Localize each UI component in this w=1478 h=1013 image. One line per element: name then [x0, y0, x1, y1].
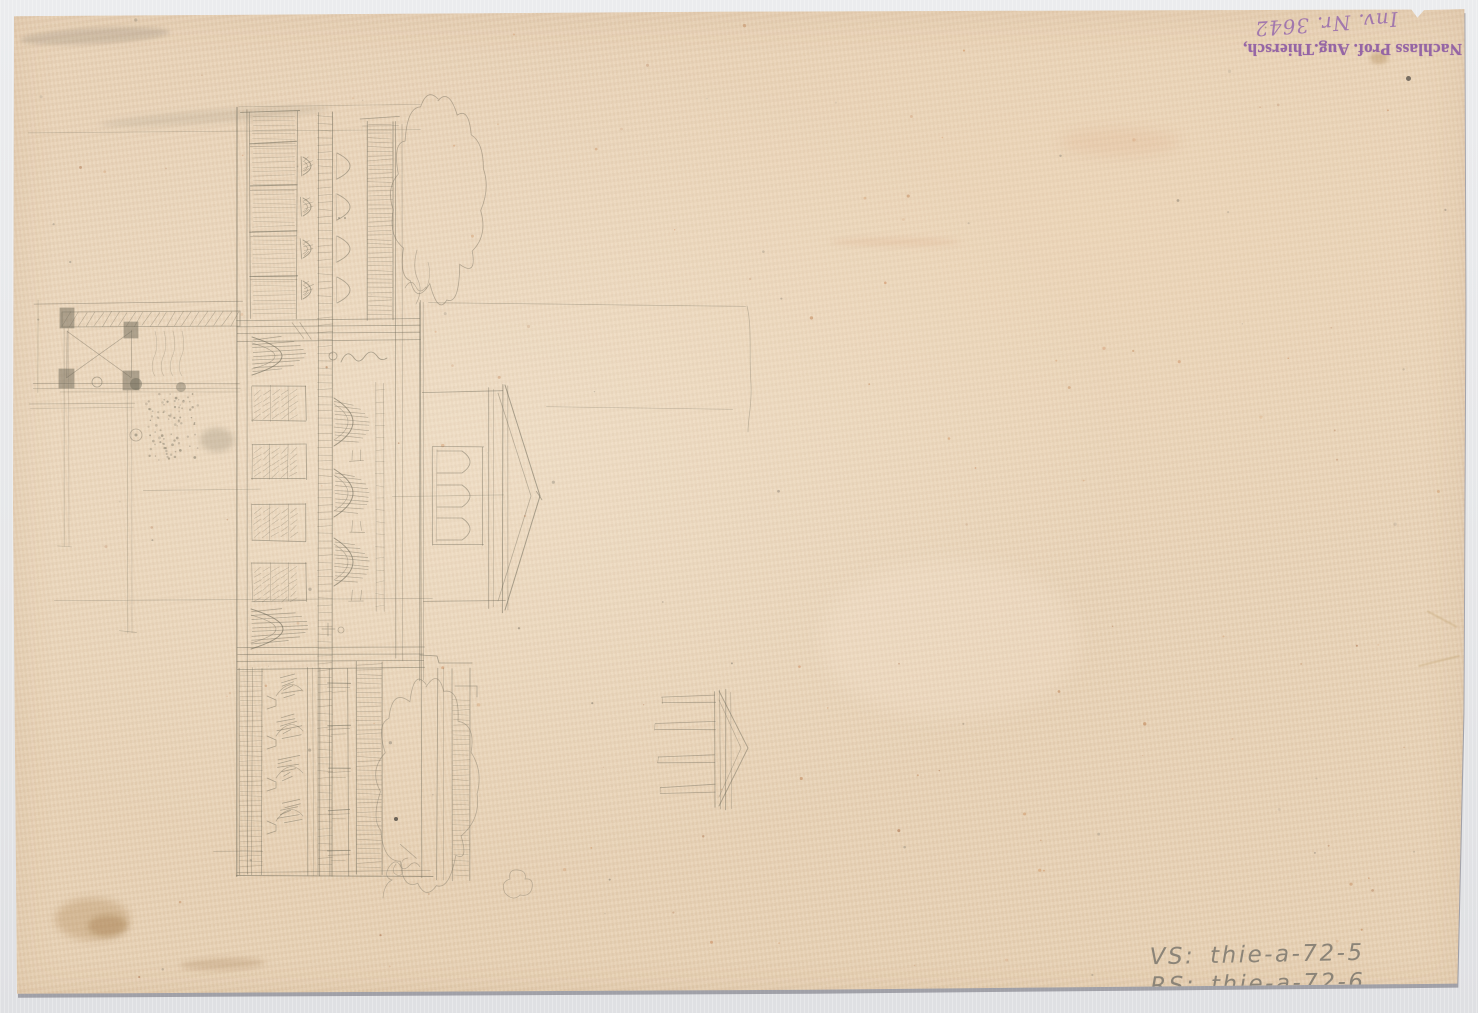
paper-sheet: Nachlass Prof. Aug.Thiersch, Inv. Nr. 36… [0, 0, 1478, 1013]
archive-stamp: Nachlass Prof. Aug.Thiersch, Inv. Nr. 36… [1198, 6, 1462, 60]
paper-grain-texture [16, 12, 1462, 990]
architectural-sketch [0, 0, 1478, 1013]
inventory-line-front: VS: thie-a-72-5 [1149, 939, 1365, 972]
scanned-sheet-view: Nachlass Prof. Aug.Thiersch, Inv. Nr. 36… [0, 0, 1478, 1013]
